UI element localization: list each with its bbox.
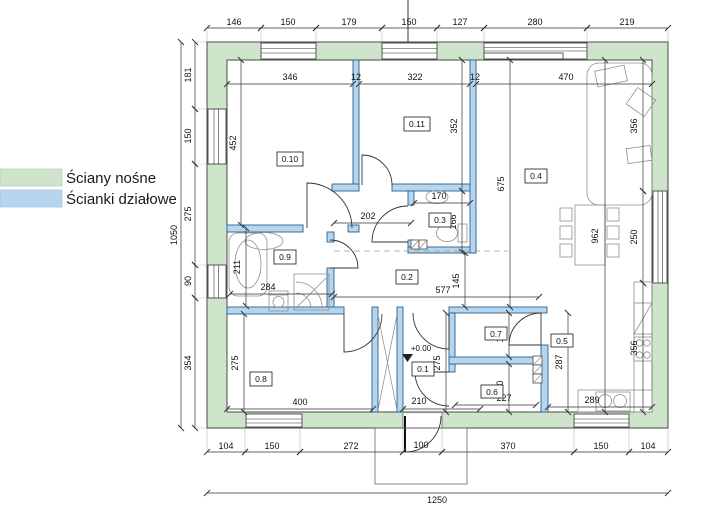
dim: 150: [261, 17, 316, 28]
dim: 127: [437, 17, 484, 28]
svg-text:0.8: 0.8: [255, 374, 267, 384]
svg-text:127: 127: [452, 17, 467, 27]
window-top-1: [261, 43, 316, 59]
dim: 202: [334, 211, 411, 223]
room-label-0-8: 0.8: [250, 372, 272, 386]
window-bottom-2: [574, 414, 629, 427]
svg-text:146: 146: [226, 17, 241, 27]
room-label-0-9: 0.9: [274, 250, 296, 264]
svg-text:272: 272: [343, 441, 358, 451]
dim: 150: [183, 109, 195, 164]
svg-text:275: 275: [183, 206, 193, 221]
svg-text:0.6: 0.6: [486, 387, 498, 397]
svg-text:170: 170: [431, 191, 446, 201]
door-r11: [362, 155, 392, 185]
svg-text:0.5: 0.5: [556, 336, 568, 346]
legend-swatch-partition: [0, 190, 62, 207]
dim: 675: [496, 60, 510, 307]
wall-r7-south: [449, 357, 547, 364]
window-left-2: [208, 265, 226, 298]
svg-text:0.2: 0.2: [401, 272, 413, 282]
svg-text:577: 577: [435, 285, 450, 295]
dim: 354: [183, 298, 195, 428]
room-label-0-5: 0.5: [551, 334, 573, 347]
window-left-1: [208, 109, 226, 164]
svg-text:0.1: 0.1: [417, 364, 429, 374]
dim: 280: [484, 17, 587, 28]
dim: 272: [300, 441, 403, 452]
dim: 346: [227, 72, 353, 84]
dim: 145: [451, 253, 465, 307]
room-label-0-2: 0.2: [396, 270, 418, 284]
svg-text:1050: 1050: [169, 225, 179, 245]
svg-text:210: 210: [411, 396, 426, 406]
entrance-opening: [403, 413, 442, 428]
svg-text:90: 90: [183, 276, 193, 286]
dim: 962: [590, 60, 605, 412]
wall-hall-north: [392, 184, 476, 191]
vent-duct-wc: [411, 240, 427, 249]
wall-bath-east-b: [327, 268, 334, 312]
svg-text:181: 181: [183, 67, 193, 82]
kitchen-sink: [596, 392, 630, 411]
dim: 452: [228, 60, 241, 225]
kitchen-counter: [578, 282, 652, 412]
dim: 100: [403, 440, 442, 452]
svg-text:0.10: 0.10: [282, 154, 299, 164]
svg-text:354: 354: [183, 355, 193, 370]
svg-text:470: 470: [558, 72, 573, 82]
svg-text:150: 150: [264, 441, 279, 451]
dim: 179: [316, 17, 382, 28]
svg-text:322: 322: [407, 72, 422, 82]
shaft-wall-west: [372, 307, 378, 412]
svg-text:962: 962: [590, 228, 600, 243]
dim: 12: [470, 72, 480, 82]
svg-text:145: 145: [451, 273, 461, 288]
svg-text:211: 211: [232, 260, 242, 274]
svg-text:0.7: 0.7: [490, 329, 502, 339]
svg-text:0.11: 0.11: [409, 119, 425, 129]
legend-swatch-load-bearing: [0, 169, 62, 186]
svg-text:0.3: 0.3: [434, 215, 446, 225]
svg-text:356: 356: [629, 340, 639, 355]
svg-text:287: 287: [554, 354, 564, 369]
dim: 90: [183, 265, 195, 298]
dim: 400: [227, 397, 373, 409]
svg-text:250: 250: [629, 229, 639, 244]
svg-text:452: 452: [228, 135, 238, 150]
svg-text:104: 104: [218, 441, 233, 451]
window-sill: [484, 53, 563, 59]
svg-text:150: 150: [280, 17, 295, 27]
entrance-porch: [375, 428, 467, 484]
door-r7: [509, 313, 541, 345]
shaft-wall-east: [397, 307, 403, 412]
room-label-0-10: 0.10: [277, 152, 303, 166]
dimensions-exterior: 146 150 179 150 127 280 219 181 150 275 …: [169, 17, 668, 505]
dim: 104: [629, 441, 668, 452]
legend-label-load-bearing: Ściany nośne: [66, 169, 156, 187]
dim: 577: [334, 285, 539, 297]
svg-text:12: 12: [351, 72, 361, 82]
room-label-0-6: 0.6: [481, 385, 503, 398]
level-marker: +0.00: [402, 344, 432, 362]
door-bath: [330, 240, 358, 268]
dim: 146: [207, 17, 261, 28]
wall-wc-west-a: [408, 191, 414, 205]
dim: 287: [554, 313, 568, 412]
room-label-0-11: 0.11: [404, 117, 430, 131]
svg-text:352: 352: [449, 118, 459, 133]
dim: 219: [587, 17, 668, 28]
svg-text:104: 104: [640, 441, 655, 451]
svg-text:370: 370: [500, 441, 515, 451]
doors: [307, 155, 541, 452]
level-triangle-icon: [402, 354, 413, 362]
svg-text:275: 275: [230, 355, 240, 370]
wall-livingroom-west: [470, 60, 476, 253]
dim: 150: [245, 441, 300, 452]
room-label-0-4: 0.4: [525, 169, 547, 183]
svg-text:356: 356: [629, 118, 639, 133]
vent-duct-kitchen: [533, 356, 542, 383]
window-top-2: [382, 43, 437, 59]
room-label-0-7: 0.7: [485, 327, 507, 340]
dim: 150: [574, 441, 629, 452]
svg-text:0.4: 0.4: [530, 171, 542, 181]
wall-bath-south: [227, 307, 344, 314]
wall-stub: [332, 184, 359, 191]
dim: 356: [629, 283, 643, 412]
dim: 12: [351, 72, 361, 82]
dim: 356: [629, 60, 643, 191]
shower: [294, 274, 329, 310]
window-right: [653, 191, 667, 283]
svg-text:0.9: 0.9: [279, 252, 291, 262]
svg-text:150: 150: [593, 441, 608, 451]
svg-text:179: 179: [341, 17, 356, 27]
level-text: +0.00: [411, 344, 432, 353]
dim: 370: [442, 441, 574, 452]
svg-text:219: 219: [619, 17, 634, 27]
floor-plan-canvas: Ściany nośne Ścianki działowe: [0, 0, 720, 509]
svg-text:346: 346: [282, 72, 297, 82]
wall-bath-north: [227, 225, 303, 232]
svg-text:280: 280: [527, 17, 542, 27]
door-wc: [372, 206, 408, 242]
svg-text:100: 100: [413, 440, 428, 450]
dim-total-height: 1050: [169, 42, 181, 428]
window-top-terrace: [484, 43, 587, 59]
floor-plan-page: Ściany nośne Ścianki działowe: [0, 0, 720, 509]
dim: 150: [382, 17, 437, 28]
dim: 322: [359, 72, 470, 84]
wall-stub2: [348, 225, 359, 232]
svg-text:1250: 1250: [427, 495, 447, 505]
room-label-0-1: 0.1: [412, 362, 434, 376]
dim: 104: [207, 441, 245, 452]
legend: Ściany nośne Ścianki działowe: [0, 169, 177, 208]
svg-text:289: 289: [584, 395, 599, 405]
dim: 275: [230, 314, 244, 412]
dim-total-width: 1250: [207, 493, 668, 505]
svg-text:150: 150: [401, 17, 416, 27]
room-label-0-3: 0.3: [429, 213, 451, 227]
dim: 210: [403, 396, 480, 409]
dimensions-interior: 346 12 322 12 470 452 352 675 962 356 25…: [227, 60, 652, 412]
dim: 181: [183, 42, 195, 109]
dim: 170: [414, 191, 470, 203]
svg-text:400: 400: [292, 397, 307, 407]
legend-label-partition: Ścianki działowe: [66, 190, 177, 208]
svg-text:675: 675: [496, 176, 506, 191]
chimney-x: [378, 315, 397, 410]
wall-corridor-south: [449, 307, 547, 313]
svg-text:202: 202: [360, 211, 375, 221]
svg-text:150: 150: [183, 128, 193, 143]
dim: 352: [449, 60, 462, 191]
partition-walls: [227, 60, 548, 412]
dim: 275: [183, 164, 195, 265]
svg-text:284: 284: [260, 282, 275, 292]
window-bottom-1: [246, 414, 302, 427]
svg-text:12: 12: [470, 72, 480, 82]
